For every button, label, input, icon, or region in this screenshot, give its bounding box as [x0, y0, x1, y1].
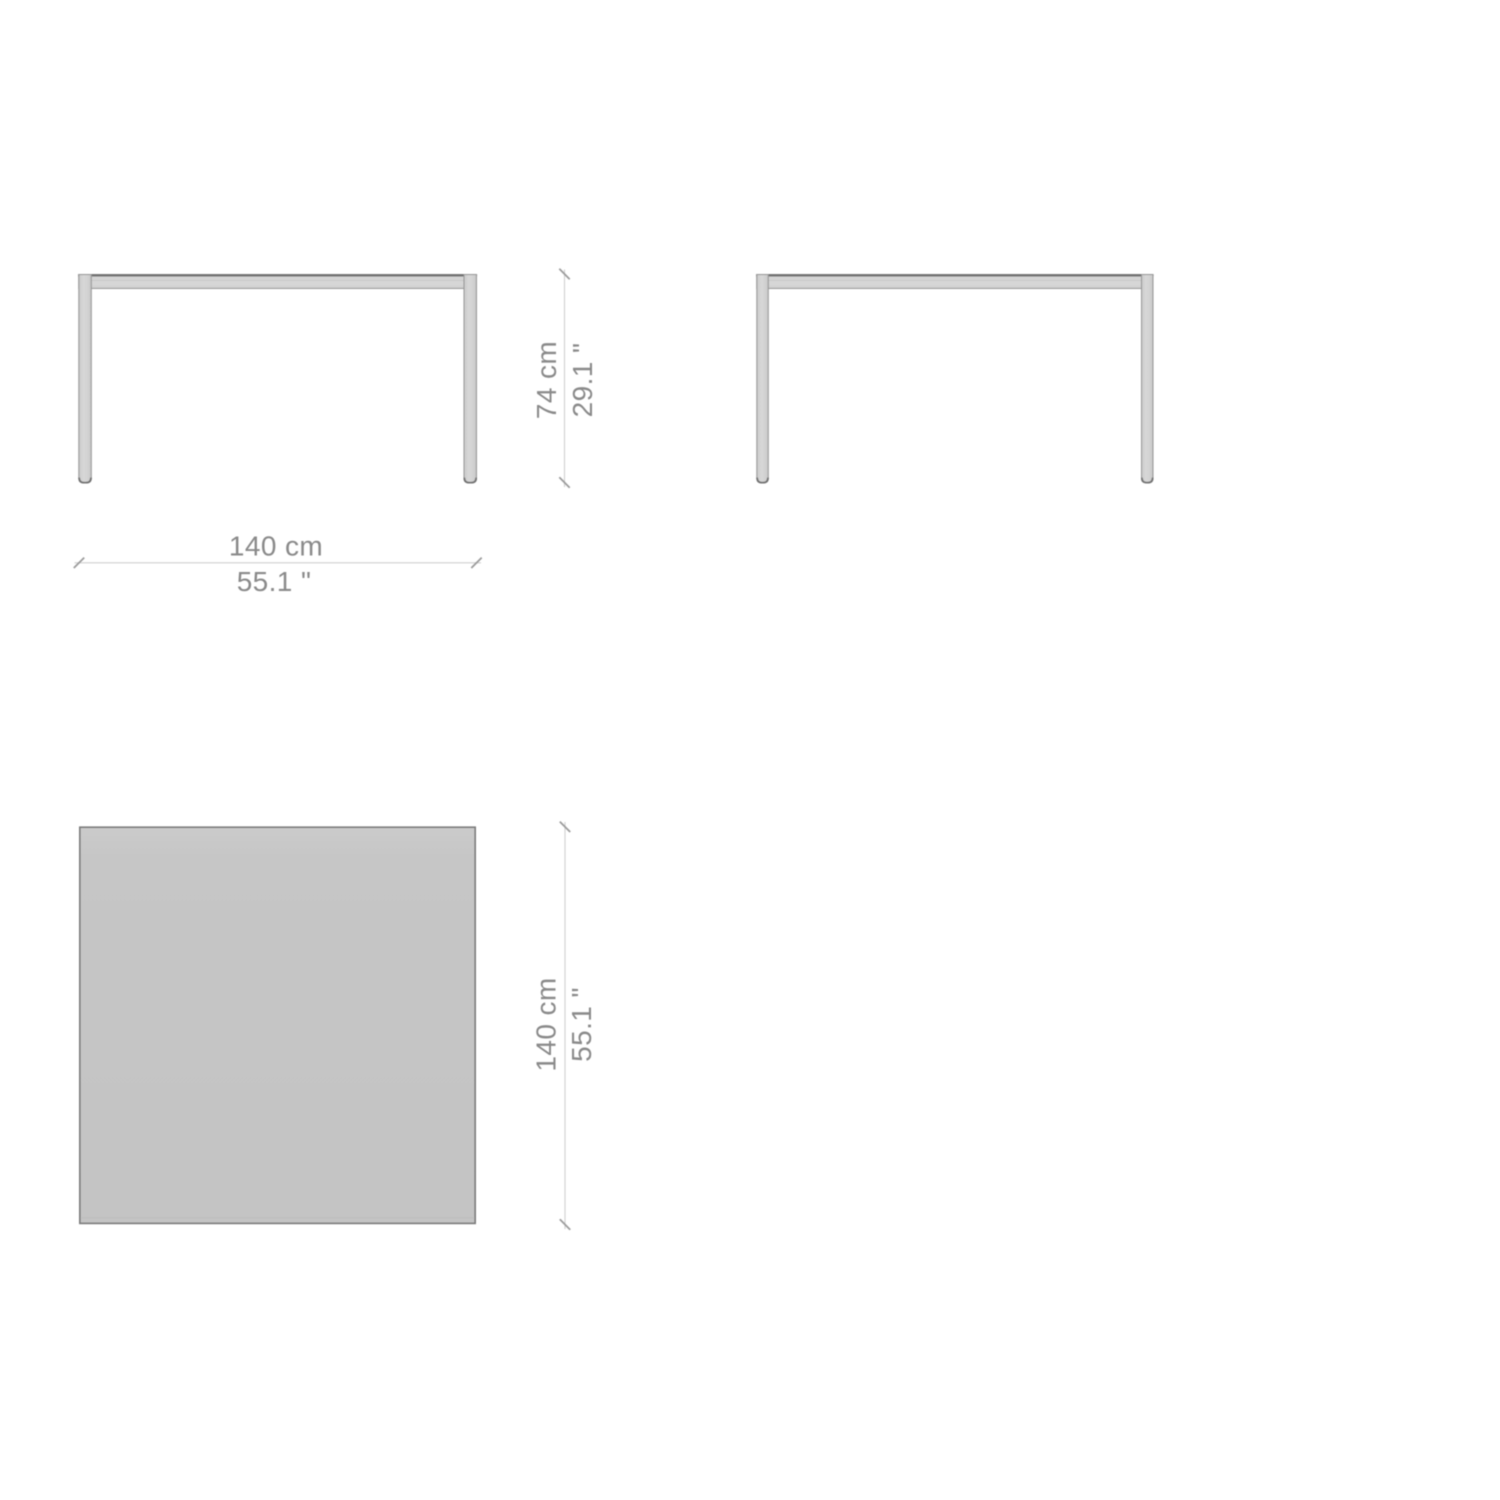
svg-text:29.1 ": 29.1 " [567, 343, 598, 418]
svg-text:74 cm: 74 cm [531, 341, 562, 419]
svg-text:55.1 ": 55.1 " [237, 566, 312, 597]
svg-text:140 cm: 140 cm [531, 977, 562, 1071]
svg-text:140 cm: 140 cm [229, 531, 323, 562]
svg-text:55.1 ": 55.1 " [566, 987, 597, 1062]
